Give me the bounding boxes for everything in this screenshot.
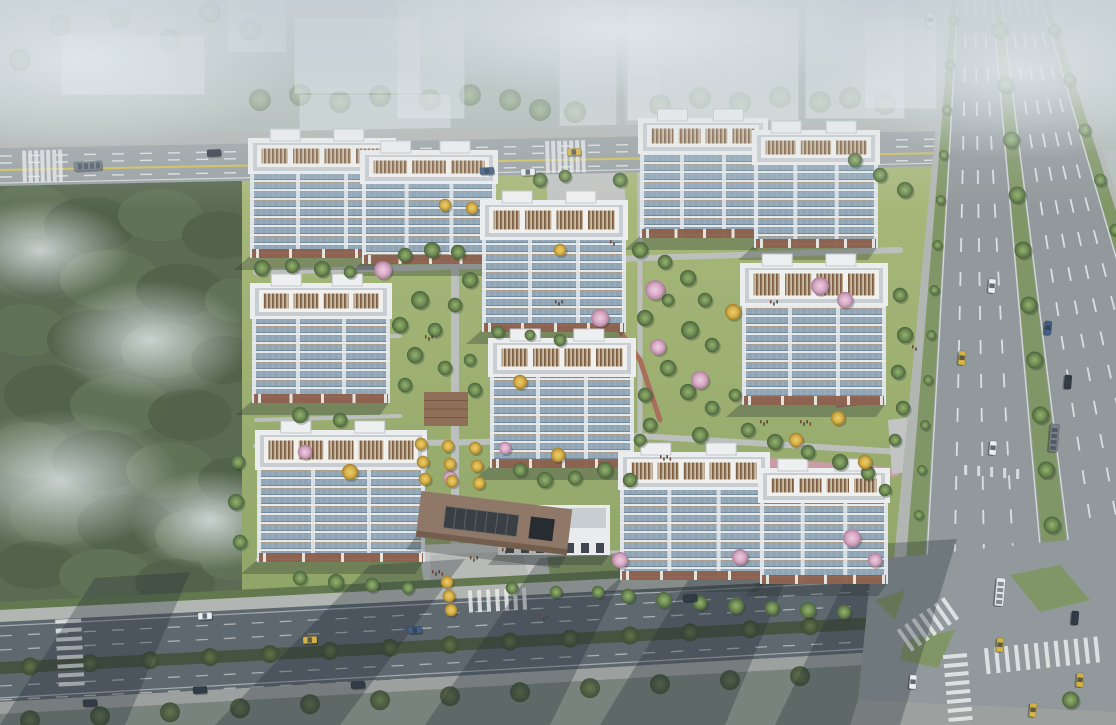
layer-haze (0, 0, 1116, 725)
aerial-rendering: Bird's-eye architectural rendering of a … (0, 0, 1116, 725)
atmosphere (0, 0, 1116, 725)
aerial-rendering-stage: Bird's-eye architectural rendering of a … (0, 0, 1116, 725)
color-grade (0, 0, 1116, 725)
